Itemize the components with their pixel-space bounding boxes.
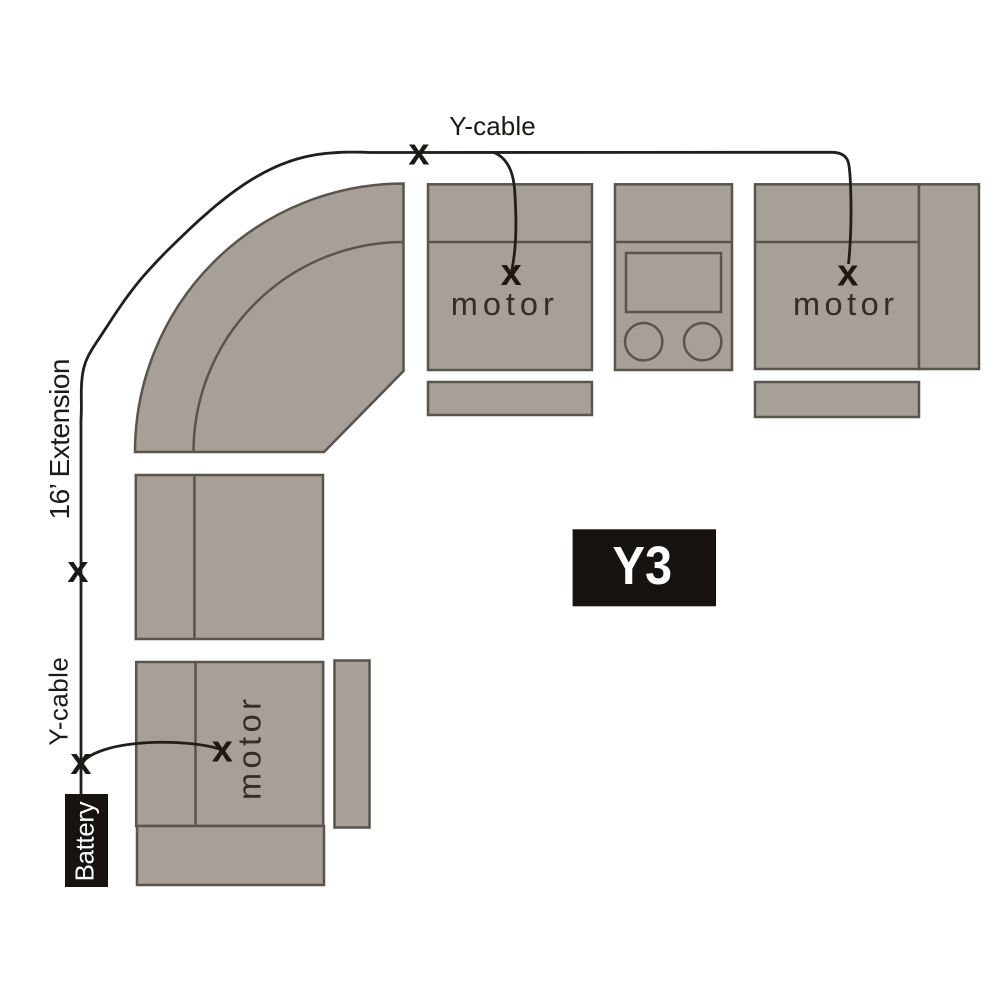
svg-text:x: x: [408, 131, 429, 173]
svg-text:Y3: Y3: [613, 536, 673, 596]
svg-text:Battery: Battery: [69, 801, 99, 881]
svg-text:x: x: [70, 741, 91, 783]
svg-text:Y-cable: Y-cable: [449, 111, 536, 141]
svg-text:16’ Extension: 16’ Extension: [44, 359, 75, 520]
svg-text:x: x: [212, 728, 233, 770]
svg-text:Y-cable: Y-cable: [44, 657, 74, 746]
svg-text:x: x: [67, 549, 88, 591]
